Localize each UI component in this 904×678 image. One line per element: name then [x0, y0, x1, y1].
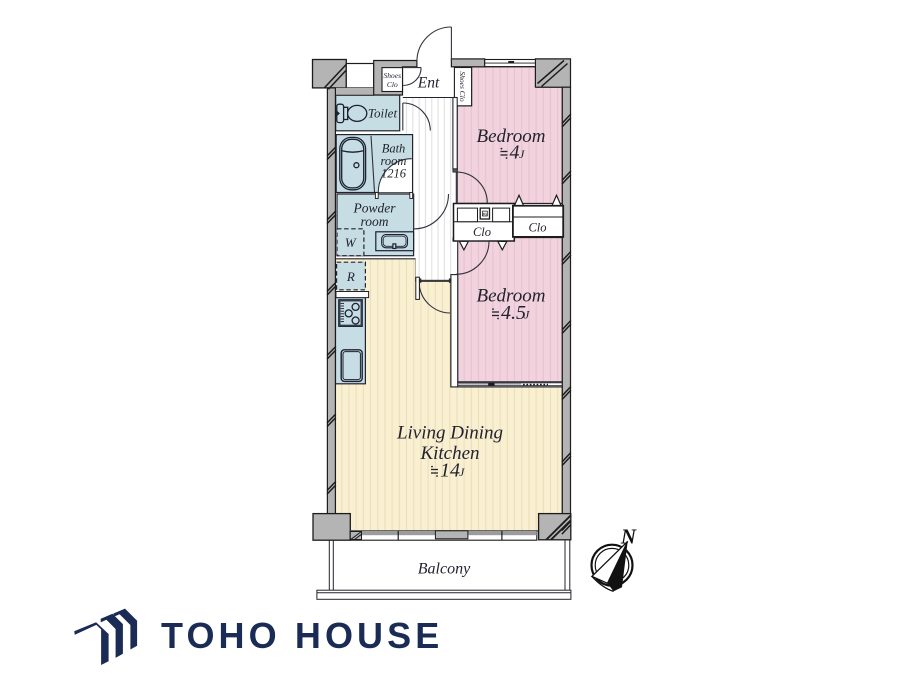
svg-text:4.5: 4.5	[501, 302, 526, 324]
svg-text:Ent: Ent	[417, 75, 440, 92]
svg-text:J: J	[524, 308, 530, 322]
svg-text:Clo: Clo	[528, 221, 546, 235]
svg-text:Toilet: Toilet	[368, 106, 398, 121]
svg-text:PS: PS	[481, 212, 488, 217]
svg-text:Clo: Clo	[473, 225, 491, 239]
svg-text:Living Dining: Living Dining	[396, 423, 503, 444]
svg-text:Shoes Clo: Shoes Clo	[458, 71, 467, 101]
svg-text:1216: 1216	[381, 167, 407, 181]
svg-text:14: 14	[440, 460, 460, 482]
svg-text:Clo: Clo	[387, 80, 398, 89]
svg-text:Balcony: Balcony	[418, 561, 471, 578]
svg-text:TOHO HOUSE: TOHO HOUSE	[161, 615, 443, 656]
svg-text:N: N	[620, 525, 637, 549]
svg-text:room: room	[360, 214, 388, 229]
svg-text:W: W	[345, 235, 357, 250]
svg-text:J: J	[459, 465, 465, 479]
svg-text:Shoes: Shoes	[384, 71, 402, 80]
svg-text:J: J	[519, 147, 525, 161]
svg-text:4: 4	[510, 142, 520, 164]
svg-text:R: R	[346, 269, 355, 284]
